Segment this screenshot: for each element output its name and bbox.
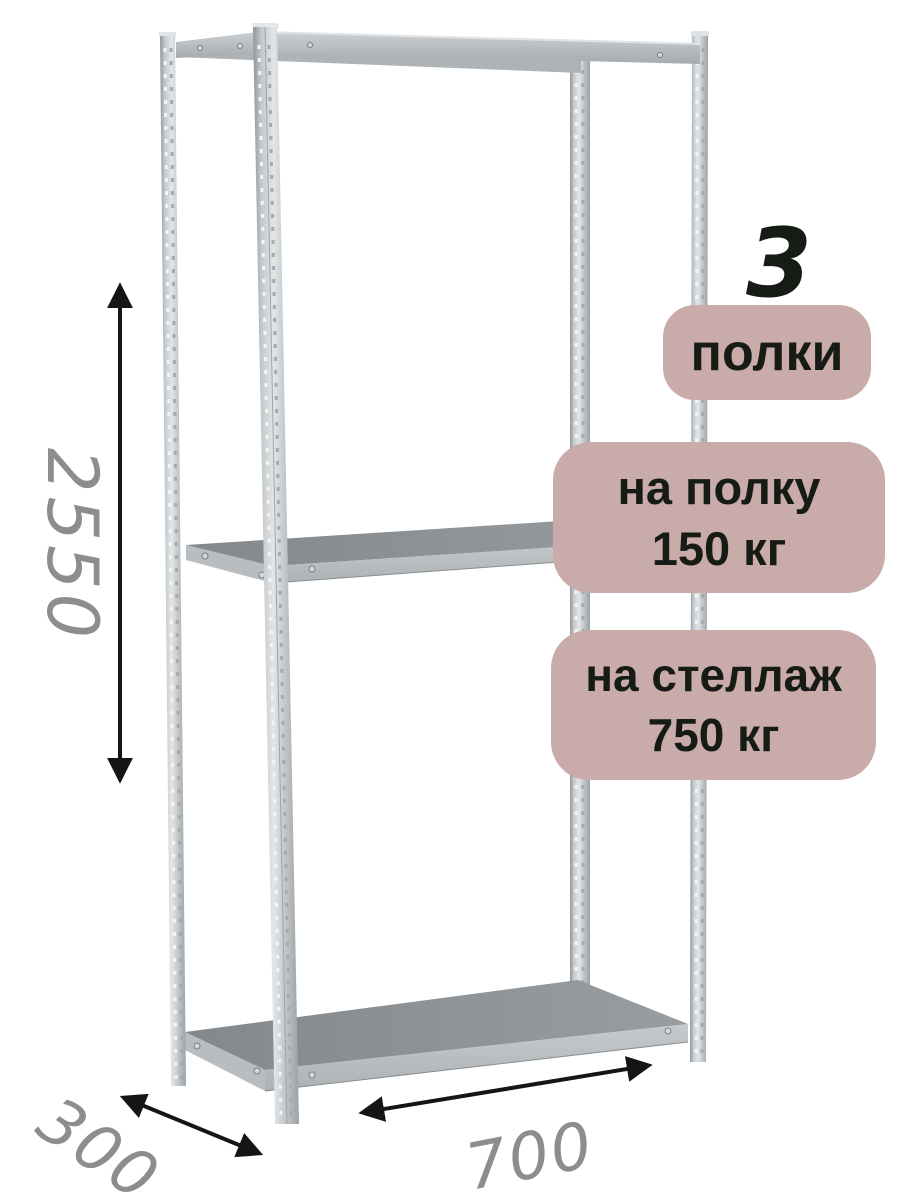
load-per-rack-line1: на стеллаж — [551, 645, 876, 705]
shelf-count-number: 3 — [724, 212, 834, 316]
shelf-count-label: полки — [663, 323, 871, 383]
load-per-rack-badge: на стеллаж 750 кг — [551, 630, 876, 780]
load-per-rack-line2: 750 кг — [551, 705, 876, 765]
shelf-count-badge: полки — [663, 305, 871, 400]
height-dimension-label: 2550 — [30, 395, 114, 695]
rack-post-back-left — [159, 32, 186, 1086]
bottom-shelf — [185, 980, 688, 1091]
load-per-shelf-line2: 150 кг — [553, 518, 885, 579]
product-dimension-diagram: 2550 300 700 3 полки на полку 150 кг на … — [0, 0, 900, 1200]
shelving-rack-illustration — [0, 0, 900, 1200]
load-per-shelf-line1: на полку — [553, 457, 885, 518]
load-per-shelf-badge: на полку 150 кг — [553, 442, 885, 593]
